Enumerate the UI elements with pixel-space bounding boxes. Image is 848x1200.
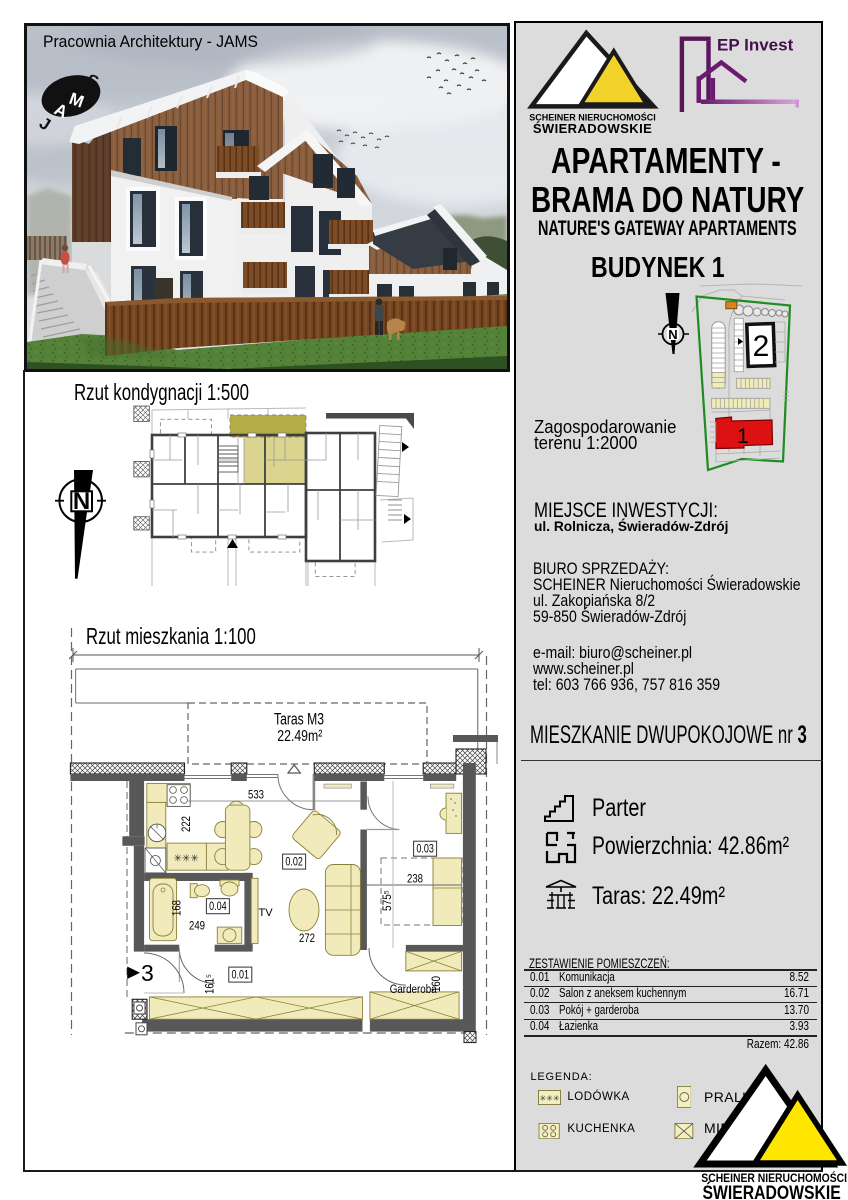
svg-text:Pracownia Architektury - JAMS: Pracownia Architektury - JAMS bbox=[43, 32, 258, 51]
svg-text:1: 1 bbox=[737, 425, 749, 448]
svg-text:N: N bbox=[73, 488, 90, 515]
svg-text:222: 222 bbox=[181, 816, 193, 832]
svg-text:0.04: 0.04 bbox=[209, 901, 227, 913]
svg-text:EP Invest: EP Invest bbox=[717, 36, 794, 55]
svg-text:✳✳✳: ✳✳✳ bbox=[540, 1094, 560, 1103]
svg-text:0.03: 0.03 bbox=[416, 844, 434, 856]
svg-text:238: 238 bbox=[407, 874, 423, 886]
svg-text:533: 533 bbox=[248, 790, 264, 802]
svg-text:22.49m²: 22.49m² bbox=[277, 728, 323, 745]
svg-text:272: 272 bbox=[299, 933, 315, 945]
svg-text:Taras M3: Taras M3 bbox=[274, 710, 324, 729]
svg-text:2: 2 bbox=[753, 330, 770, 363]
svg-text:✳✳✳: ✳✳✳ bbox=[174, 854, 199, 865]
svg-text:0.02: 0.02 bbox=[285, 857, 303, 869]
svg-text:161⁵: 161⁵ bbox=[205, 974, 217, 994]
svg-text:3: 3 bbox=[141, 960, 154, 986]
svg-text:N: N bbox=[668, 327, 677, 342]
svg-text:Garderoba: Garderoba bbox=[390, 984, 438, 996]
svg-text:0.01: 0.01 bbox=[232, 970, 250, 982]
svg-text:TV: TV bbox=[259, 907, 274, 919]
svg-text:168: 168 bbox=[172, 900, 184, 916]
svg-text:ŚWIERADOWSKIE: ŚWIERADOWSKIE bbox=[703, 1180, 841, 1200]
svg-text:249: 249 bbox=[189, 921, 205, 933]
svg-text:ŚWIERADOWSKIE: ŚWIERADOWSKIE bbox=[533, 121, 652, 136]
svg-text:575⁵: 575⁵ bbox=[382, 890, 394, 911]
